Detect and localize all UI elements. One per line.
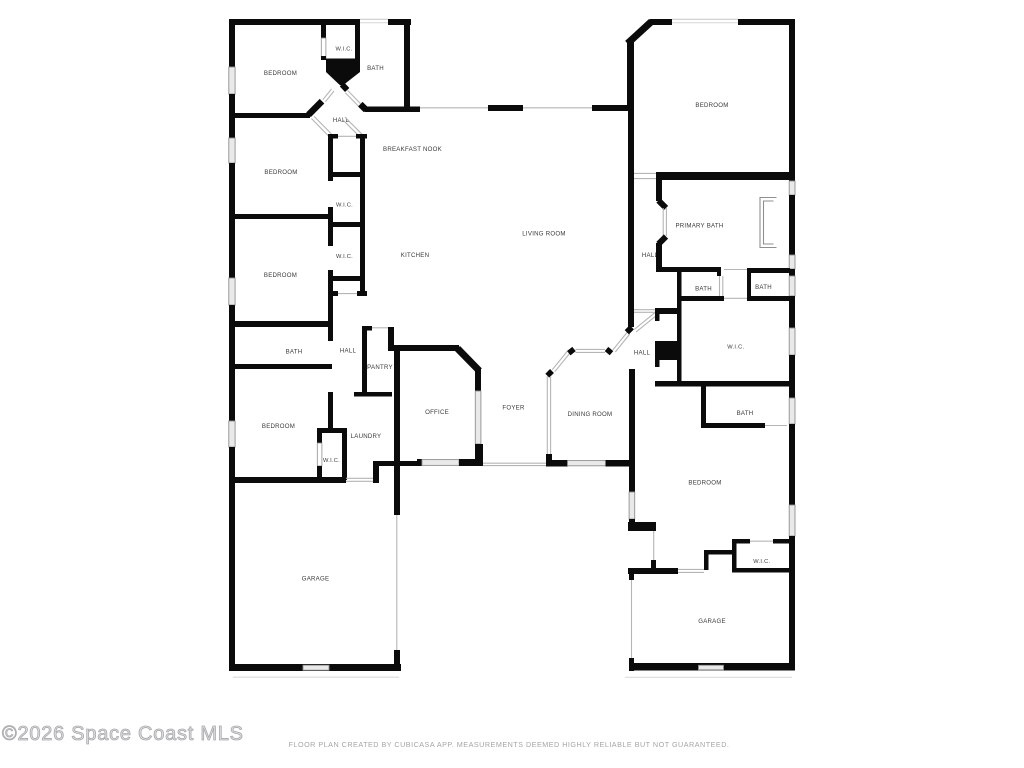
svg-text:DINING ROOM: DINING ROOM [568,411,613,418]
svg-text:BATH: BATH [737,410,754,417]
svg-text:OFFICE: OFFICE [425,409,449,416]
svg-text:KITCHEN: KITCHEN [401,252,430,259]
svg-text:BEDROOM: BEDROOM [695,102,728,109]
svg-text:BEDROOM: BEDROOM [262,423,295,430]
svg-text:PRIMARY BATH: PRIMARY BATH [675,223,723,230]
svg-text:BEDROOM: BEDROOM [688,480,721,487]
svg-text:PANTRY: PANTRY [367,364,393,371]
svg-text:W.I.C.: W.I.C. [323,458,340,464]
svg-text:FLOOR PLAN CREATED BY CUBICASA: FLOOR PLAN CREATED BY CUBICASA APP. MEAS… [289,740,730,749]
svg-text:BEDROOM: BEDROOM [264,272,297,279]
svg-text:W.I.C.: W.I.C. [336,254,353,260]
svg-text:HALL: HALL [642,252,659,259]
svg-text:W.I.C.: W.I.C. [336,203,353,209]
svg-text:HALL: HALL [634,350,651,357]
svg-text:BREAKFAST NOOK: BREAKFAST NOOK [383,146,442,153]
svg-text:BATH: BATH [695,286,712,293]
svg-text:BATH: BATH [755,284,772,291]
svg-text:BEDROOM: BEDROOM [264,70,297,77]
svg-text:HALL: HALL [340,348,357,355]
svg-text:LIVING ROOM: LIVING ROOM [522,231,565,238]
svg-text:W.I.C.: W.I.C. [727,345,744,351]
svg-text:FOYER: FOYER [502,405,525,412]
svg-text:W.I.C.: W.I.C. [753,559,770,565]
svg-text:BATH: BATH [286,349,303,356]
svg-text:GARAGE: GARAGE [302,576,330,583]
svg-text:LAUNDRY: LAUNDRY [351,433,382,440]
svg-text:BATH: BATH [367,65,384,72]
svg-text:W.I.C.: W.I.C. [336,47,353,53]
svg-text:©2026 Space Coast MLS: ©2026 Space Coast MLS [2,723,244,745]
svg-text:GARAGE: GARAGE [698,618,726,625]
svg-text:BEDROOM: BEDROOM [264,169,297,176]
svg-text:HALL: HALL [333,117,350,124]
